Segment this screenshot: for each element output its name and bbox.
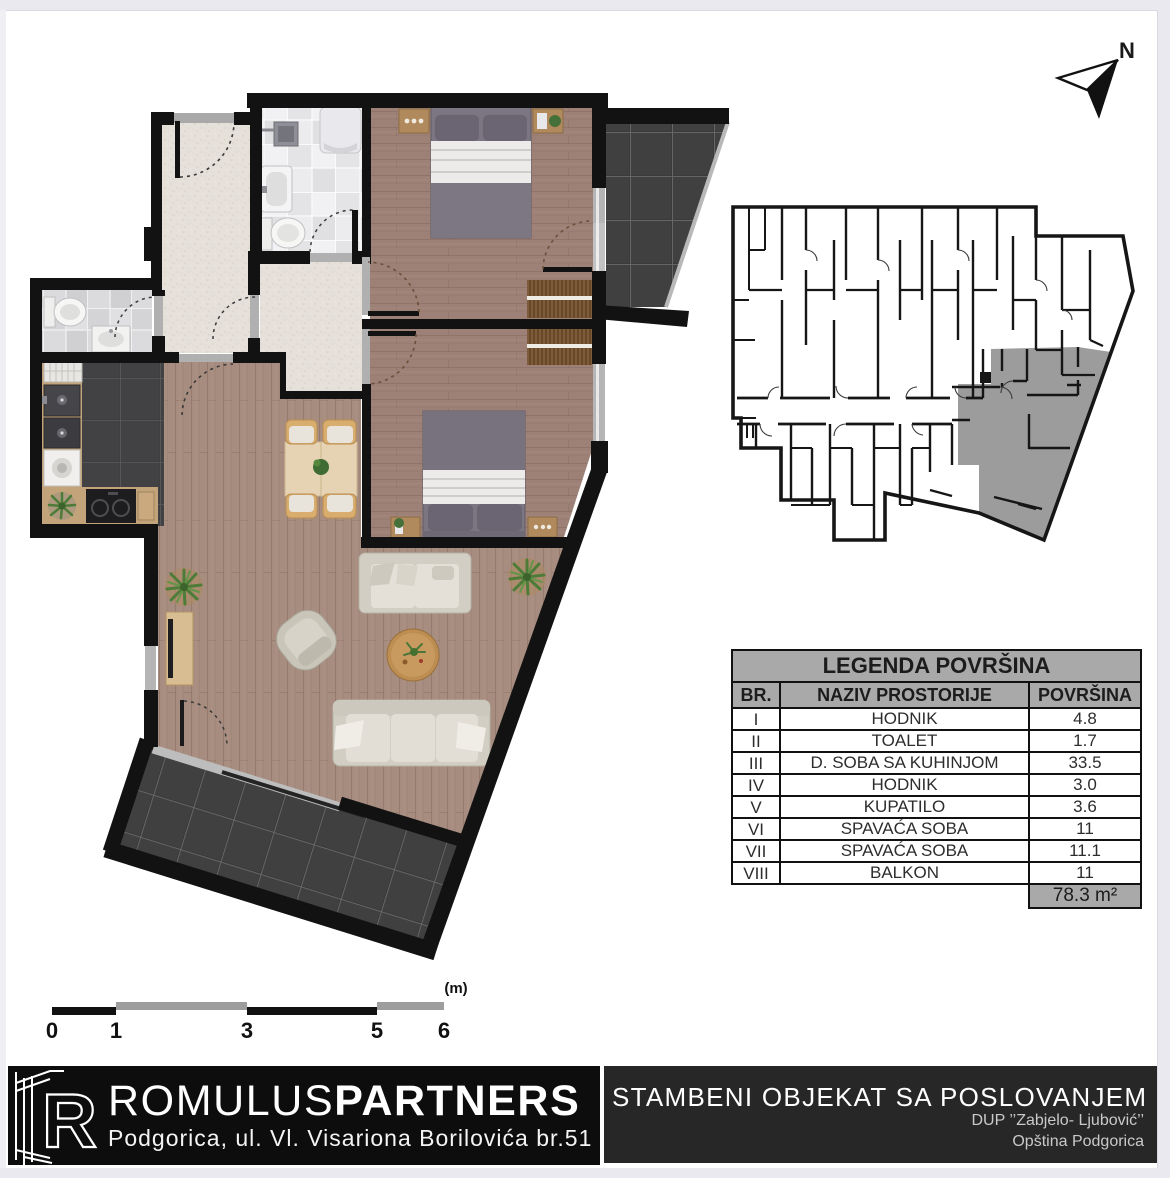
svg-text:(m): (m)	[444, 980, 467, 997]
svg-text:0: 0	[46, 1018, 58, 1043]
svg-text:R: R	[42, 1079, 97, 1164]
svg-text:5: 5	[371, 1018, 383, 1043]
svg-text:1: 1	[110, 1018, 122, 1043]
svg-text:N: N	[1119, 38, 1135, 63]
svg-text:3: 3	[241, 1018, 253, 1043]
svg-text:6: 6	[438, 1018, 450, 1043]
